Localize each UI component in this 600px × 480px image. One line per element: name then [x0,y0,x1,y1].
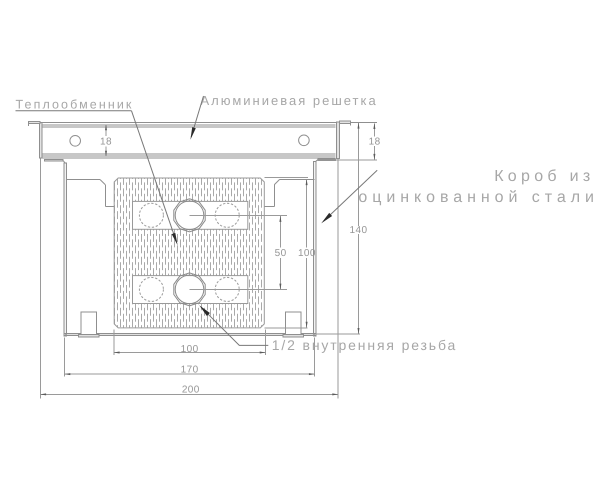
svg-text:Короб из: Короб из [494,168,594,185]
svg-text:Алюминиевая решетка: Алюминиевая решетка [201,93,378,108]
svg-text:170: 170 [181,365,199,376]
svg-text:100: 100 [181,344,199,355]
svg-text:1/2 внутренняя резьба: 1/2 внутренняя резьба [272,337,457,353]
svg-text:18: 18 [100,137,112,148]
svg-text:100: 100 [298,248,316,259]
svg-text:50: 50 [275,248,287,259]
svg-text:оцинкованной стали: оцинкованной стали [358,189,599,206]
svg-text:Теплообменник: Теплообменник [16,97,134,111]
svg-text:200: 200 [182,385,200,396]
svg-text:18: 18 [369,137,381,148]
svg-text:140: 140 [350,225,368,236]
